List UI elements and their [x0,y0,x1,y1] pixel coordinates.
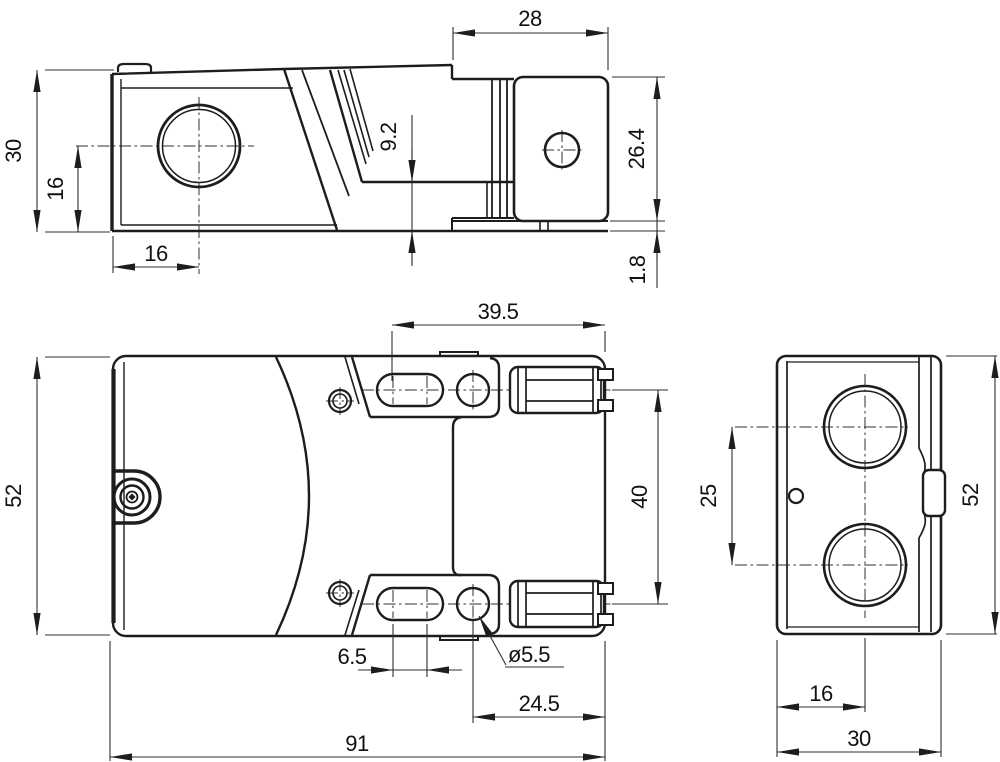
dim-label-plate-thickness: 1.8 [625,255,650,284]
plan-view: 52 39.5 40 6.5 ø5.5 24.5 91 [1,299,668,761]
dim-label-hole-center-height: 16 [43,177,68,201]
end-view: 25 52 16 30 [696,356,997,757]
end-outline [777,356,941,634]
clamp-bracket-bottom [510,581,613,627]
dim-label-hole-center-x: 16 [144,241,168,266]
end-view-dimensions: 25 52 16 30 [696,356,997,757]
dim-label-slot-length: 6.5 [337,644,366,669]
dim-label-flange-length: 39.5 [478,299,519,324]
vent-hole [789,489,803,503]
dim-label-head-height: 26.4 [624,128,649,169]
technical-drawing-page: 28 30 16 16 9.2 26.4 1.8 [0,0,1000,762]
dim-label-total-height: 30 [1,139,26,163]
dim-label-gland-center-x: 16 [809,681,833,706]
side-latch [923,470,945,516]
dim-label-body-width: 52 [1,484,26,508]
head-block [514,77,608,221]
dimension-drawing: 28 30 16 16 9.2 26.4 1.8 [0,0,1000,762]
dim-label-hole-diameter: ø5.5 [508,642,550,667]
dim-label-end-height: 52 [958,483,983,507]
cover-curve [276,357,309,635]
dim-label-hole-spacing: 40 [627,485,652,509]
dim-label-gland-spacing: 25 [696,484,721,508]
dim-label-total-length: 91 [345,731,369,756]
dim-label-step-height: 9.2 [376,122,401,151]
dim-label-hole-to-end: 24.5 [519,691,560,716]
top-button [118,64,151,72]
side-screw-boss [113,471,160,523]
side-view-dimensions: 28 30 16 16 9.2 26.4 1.8 [1,6,665,288]
dim-label-end-width: 30 [847,726,871,751]
dim-label-head-width: 28 [518,6,542,31]
side-view: 28 30 16 16 9.2 26.4 1.8 [1,6,665,288]
clamp-bracket-top [510,367,613,413]
